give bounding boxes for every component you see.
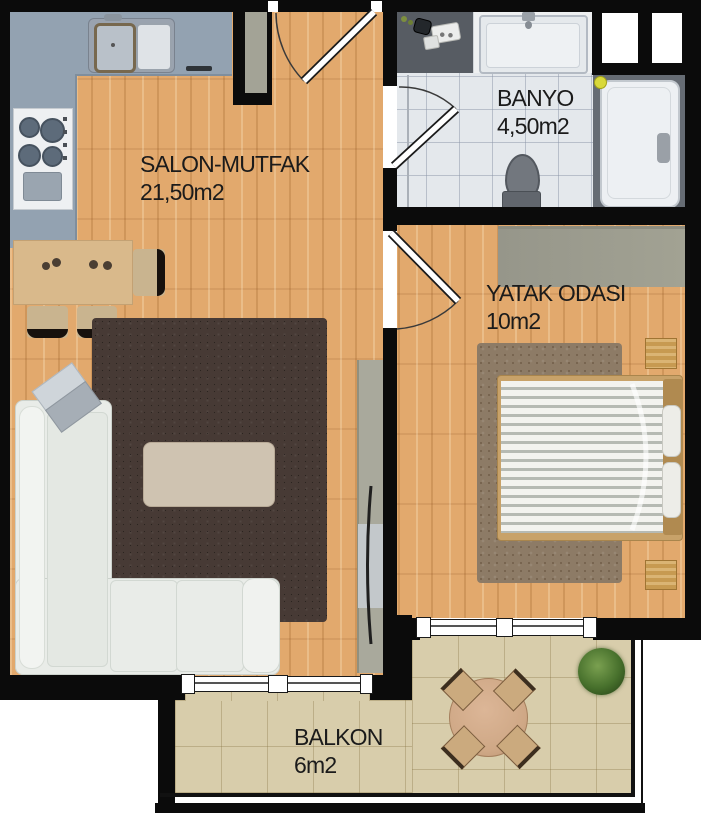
bed-mattress: [501, 381, 663, 533]
rubber-duck-icon: [594, 76, 607, 89]
window-mullion: [360, 674, 373, 694]
soap-item-icon: [408, 20, 413, 25]
balcony-railing-bottom: [160, 793, 635, 797]
balcony-railing-right: [631, 640, 635, 797]
pillow: [662, 405, 681, 457]
tv-stand-base: [358, 524, 383, 608]
shower-screen-line: [407, 75, 409, 208]
door-jamb: [268, 1, 278, 12]
room-label-yatak-odasi: YATAK ODASI 10m2: [486, 279, 625, 335]
interior-wall-hall: [383, 12, 397, 86]
lightwell-window: [652, 13, 682, 63]
kitchen-drawer-handle: [186, 66, 212, 71]
kitchen-sink-bowl-right: [136, 23, 172, 71]
balcony-bottom-bar: [155, 803, 645, 813]
interior-wall-bath-bedroom: [383, 207, 701, 225]
room-label-balkon: BALKON 6m2: [294, 723, 383, 779]
nightstand: [645, 560, 677, 590]
exterior-wall-bedroom-bottom: [593, 618, 701, 640]
bathroom-sink-inner: [486, 23, 580, 68]
room-name: BALKON: [294, 723, 383, 751]
sofa-seat-cushion: [110, 580, 178, 672]
exterior-wall-salon-bottom: [370, 675, 412, 700]
lightwell-window: [602, 13, 638, 63]
exterior-wall-left: [0, 0, 10, 700]
kitchen-sink-drain-icon: [111, 43, 115, 47]
floor-plan: SALON-MUTFAK 21,50m2 BANYO 4,50m2 YATAK …: [0, 0, 701, 813]
balcony-plant: [578, 648, 625, 695]
stove-control-knobs: [63, 117, 67, 169]
table-knob: [89, 260, 98, 269]
balcony-outer-line: [641, 640, 643, 808]
entrance-column: [245, 12, 267, 93]
stove-burner: [40, 118, 65, 143]
sofa-chaise-pad: [47, 412, 108, 667]
stove-burner: [18, 144, 41, 167]
stove-burner: [19, 117, 40, 138]
wardrobe: [498, 226, 685, 287]
chair-backrest: [27, 329, 68, 338]
window-mullion: [583, 617, 597, 638]
soap-item-icon: [401, 16, 407, 22]
kitchen-faucet-icon: [104, 14, 122, 21]
chair-backrest: [157, 249, 165, 296]
dining-table: [13, 240, 133, 305]
nightstand: [645, 338, 677, 369]
coffee-table: [143, 442, 275, 507]
dining-chair: [133, 249, 165, 296]
kitchen-sink-bowl-left: [94, 23, 136, 73]
window-mullion: [181, 674, 195, 694]
stove-burner: [42, 146, 63, 167]
table-knob: [52, 258, 61, 267]
toiletry-box-icon: [423, 35, 440, 50]
window-mullion: [496, 618, 513, 637]
room-name: YATAK ODASI: [486, 279, 625, 307]
room-area: 6m2: [294, 751, 383, 779]
room-label-salon-mutfak: SALON-MUTFAK 21,50m2: [140, 150, 309, 206]
table-knob: [42, 262, 50, 270]
interior-wall-salon-bedroom: [383, 328, 397, 615]
dining-chair: [27, 306, 68, 338]
room-area: 4,50m2: [497, 112, 574, 140]
bedroom-door-opening: [383, 231, 397, 328]
bathtub-faucet-icon: [657, 133, 670, 163]
balcony-wall-left: [158, 690, 175, 805]
sofa-armrest: [242, 578, 280, 673]
window-mullion: [268, 675, 288, 693]
room-name: SALON-MUTFAK: [140, 150, 309, 178]
door-jamb: [371, 1, 382, 12]
bathroom-faucet-icon: [525, 21, 532, 29]
sofa-back-roll: [19, 406, 45, 669]
window-mullion: [416, 617, 431, 638]
bathroom-door-opening: [383, 86, 397, 168]
room-area: 21,50m2: [140, 178, 309, 206]
sofa-seat-cushion: [176, 580, 244, 672]
table-knob: [103, 261, 112, 270]
pillow: [662, 462, 681, 518]
bathroom-faucet-icon: [522, 12, 535, 21]
room-label-banyo: BANYO 4,50m2: [497, 84, 574, 140]
room-name: BANYO: [497, 84, 574, 112]
exterior-wall-right: [685, 0, 701, 640]
room-area: 10m2: [486, 307, 625, 335]
oven-door: [23, 172, 62, 201]
